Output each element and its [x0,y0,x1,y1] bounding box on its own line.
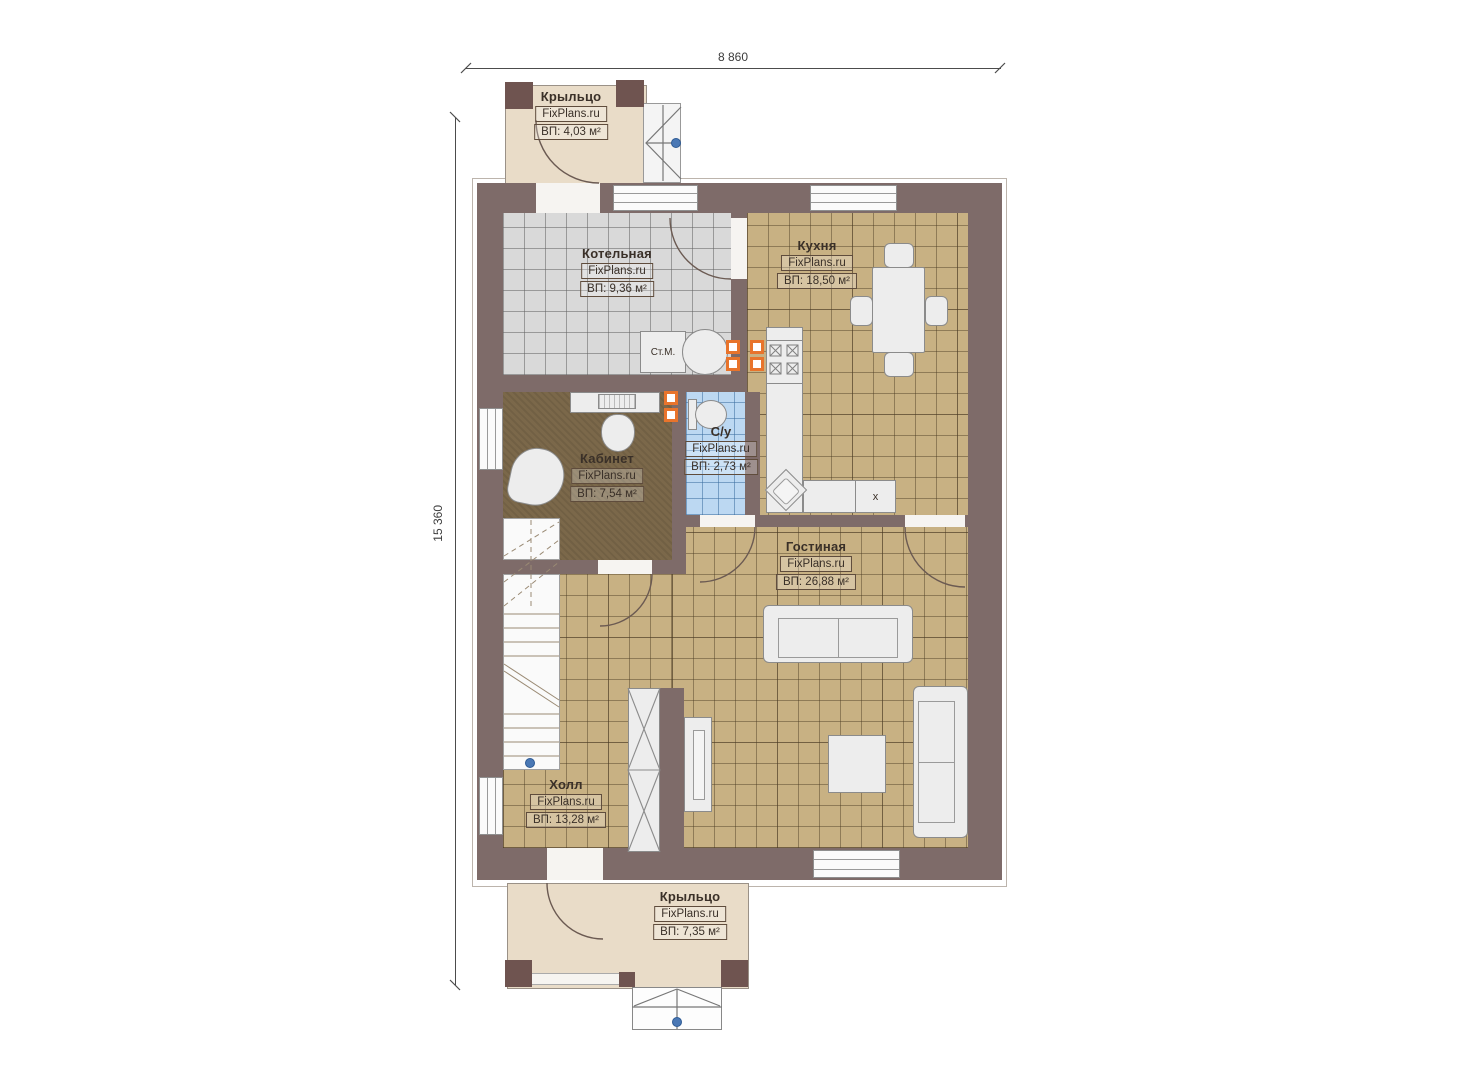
water-heater [682,329,728,375]
room-area: ВП: 26,88 м² [776,574,856,590]
wall-below-study [503,560,686,574]
dining-table [872,267,925,353]
room-label-study: Кабинет FixPlans.ru ВП: 7,54 м² [570,451,644,502]
room-area: ВП: 7,35 м² [653,924,727,940]
watermark: FixPlans.ru [654,906,726,922]
power-socket [664,391,678,405]
washing-machine-label: Ст.М. [651,347,676,358]
wall-below-boiler [503,375,747,392]
wall-hall-living-stub [660,688,684,852]
room-area: ВП: 4,03 м² [534,124,608,140]
dimension-line-top [465,68,1001,69]
power-socket [726,340,740,354]
room-label-bathroom: С/у FixPlans.ru ВП: 2,73 м² [684,424,758,475]
desk-keyboard [598,394,636,409]
room-name: Холл [549,777,582,792]
wall-outer-left [477,183,503,880]
coffee-table [828,735,886,793]
desk-chair [601,414,635,452]
boiler-door-opening [731,218,747,279]
porch-top-pillar-right [616,80,644,107]
porch-bottom-pillar-small [619,972,635,987]
wardrobe [628,688,660,852]
power-socket [750,340,764,354]
room-label-hall: Холл FixPlans.ru ВП: 13,28 м² [526,777,606,828]
dining-chair-top [884,243,914,268]
power-socket [726,357,740,371]
watermark: FixPlans.ru [581,263,653,279]
room-area: ВП: 13,28 м² [526,812,606,828]
room-label-boiler: Котельная FixPlans.ru ВП: 9,36 м² [580,246,654,297]
window-study-left [479,408,503,470]
room-area: ВП: 18,50 м² [777,273,857,289]
dining-chair-left [850,296,873,326]
room-name: Крыльцо [541,89,602,104]
study-door-opening [598,560,652,574]
room-label-kitchen: Кухня FixPlans.ru ВП: 18,50 м² [777,238,857,289]
watermark: FixPlans.ru [781,255,853,271]
porch-bottom-pillar-left [505,960,532,987]
power-socket [664,408,678,422]
room-label-porch-bottom: Крыльцо FixPlans.ru ВП: 7,35 м² [653,889,727,940]
porch-bottom-pillar-right [721,960,748,987]
porch-top-pillar-left [505,82,533,109]
floor-plan-canvas: Ст.М. x [0,0,1474,1080]
window-kitchen-top [810,185,897,211]
bathroom-door-opening [700,515,755,527]
sofa-main [763,605,913,663]
room-area: ВП: 7,54 м² [570,486,644,502]
watermark: FixPlans.ru [571,468,643,484]
dining-chair-bottom [884,352,914,377]
living-door-opening [905,515,965,527]
window-living-bottom [813,850,900,878]
dimension-label-width: 8 860 [465,50,1001,64]
dimension-label-height: 15 360 [431,505,445,542]
staircase-lower [503,574,560,770]
room-area: ВП: 2,73 м² [684,459,758,475]
sofa-right [913,686,968,838]
watermark: FixPlans.ru [685,441,757,457]
room-name: Кабинет [580,451,634,466]
dishwasher-appliance: x [855,480,896,513]
room-label-porch-top: Крыльцо FixPlans.ru ВП: 4,03 м² [534,89,608,140]
dining-chair-right [925,296,948,326]
room-name: Котельная [582,246,652,261]
washing-machine: Ст.М. [640,331,686,373]
room-area: ВП: 9,36 м² [580,281,654,297]
window-boiler-top [613,185,698,211]
watermark: FixPlans.ru [535,106,607,122]
room-name: С/у [711,424,732,439]
stove [766,340,803,384]
wall-outer-right [968,183,1002,880]
porch-bottom-steps [632,987,722,1030]
watermark: FixPlans.ru [780,556,852,572]
porch-bottom-walkway [530,973,630,985]
watermark: FixPlans.ru [530,794,602,810]
room-name: Кухня [797,238,836,253]
staircase-upper [503,518,560,560]
radiator [684,717,712,812]
room-name: Крыльцо [660,889,721,904]
room-label-living: Гостиная FixPlans.ru ВП: 26,88 м² [776,539,856,590]
window-hall-left [479,777,503,835]
entry-door-opening-top [536,183,600,213]
exit-door-opening-bottom [547,848,603,880]
power-socket [750,357,764,371]
porch-top-stairs [643,103,681,183]
dishwasher-label: x [873,491,879,503]
dimension-line-left [455,117,456,985]
room-name: Гостиная [786,539,846,554]
